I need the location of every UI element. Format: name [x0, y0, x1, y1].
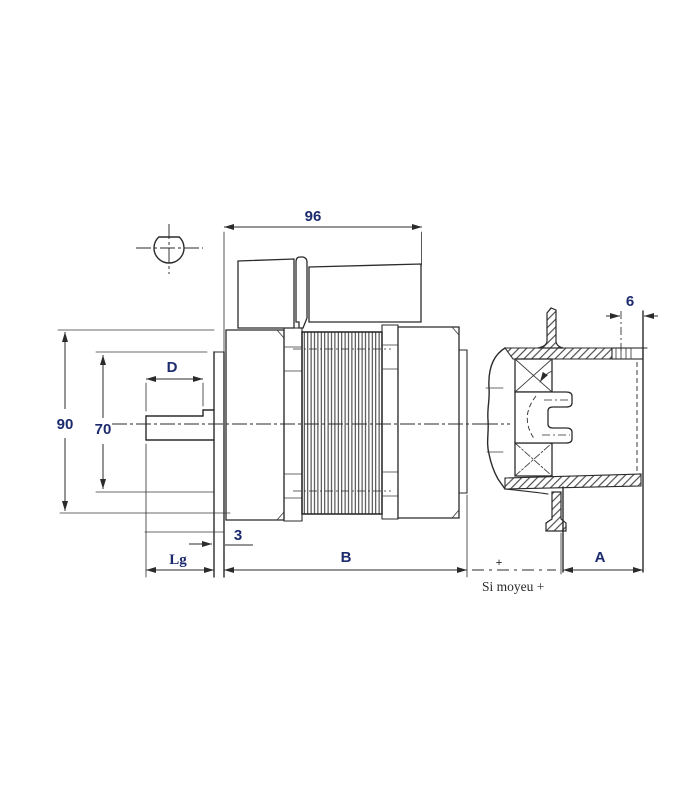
foot-transition [505, 489, 548, 494]
hub-note: Si moyeu + [482, 579, 544, 594]
dim-3-label: 3 [234, 527, 242, 544]
plus-mark: + [496, 555, 503, 569]
spigot-ring-section [612, 348, 643, 359]
dim-6-label: 6 [626, 293, 634, 310]
dim-96-label: 96 [305, 208, 322, 225]
dim-90-label: 90 [57, 416, 74, 433]
upper-bearing [515, 359, 552, 392]
terminal-box-left-block [238, 259, 294, 328]
shaft [146, 410, 214, 440]
front-spacer-ring [284, 328, 302, 521]
terminal-box [238, 257, 421, 328]
bell-outer-profile [488, 348, 505, 489]
shaft-section-detail [136, 224, 203, 274]
dim-70-label: 70 [95, 421, 112, 438]
flange-section-view [483, 308, 647, 574]
dim-90: 90 [57, 330, 230, 513]
dim-6: 6 [606, 293, 658, 354]
top-wall-section [505, 348, 612, 359]
dim-D-label: D [167, 359, 178, 376]
hub-option-bridge: + [472, 555, 556, 570]
top-mounting-ear [538, 308, 563, 348]
dim-D: D [146, 359, 203, 411]
dim-70: 70 [95, 352, 214, 492]
dim-A: A [563, 549, 643, 570]
cable-gland [296, 257, 307, 328]
technical-drawing-canvas: 96 [0, 0, 700, 800]
front-end-bell [226, 330, 284, 520]
rear-spacer-ring [382, 325, 398, 519]
motor-dimension-drawing: 96 [0, 0, 700, 800]
dim-3: 3 [189, 527, 253, 545]
dim-Lg: Lg [146, 444, 214, 577]
rear-end-bell [398, 327, 459, 518]
dim-B-label: B [341, 549, 352, 566]
dim-Lg-label: Lg [169, 552, 187, 568]
lower-bearing [515, 443, 552, 476]
dim-A-label: A [595, 549, 606, 566]
stator-stack [293, 332, 391, 514]
terminal-box-right-block [309, 264, 421, 322]
rear-boss [459, 350, 467, 493]
